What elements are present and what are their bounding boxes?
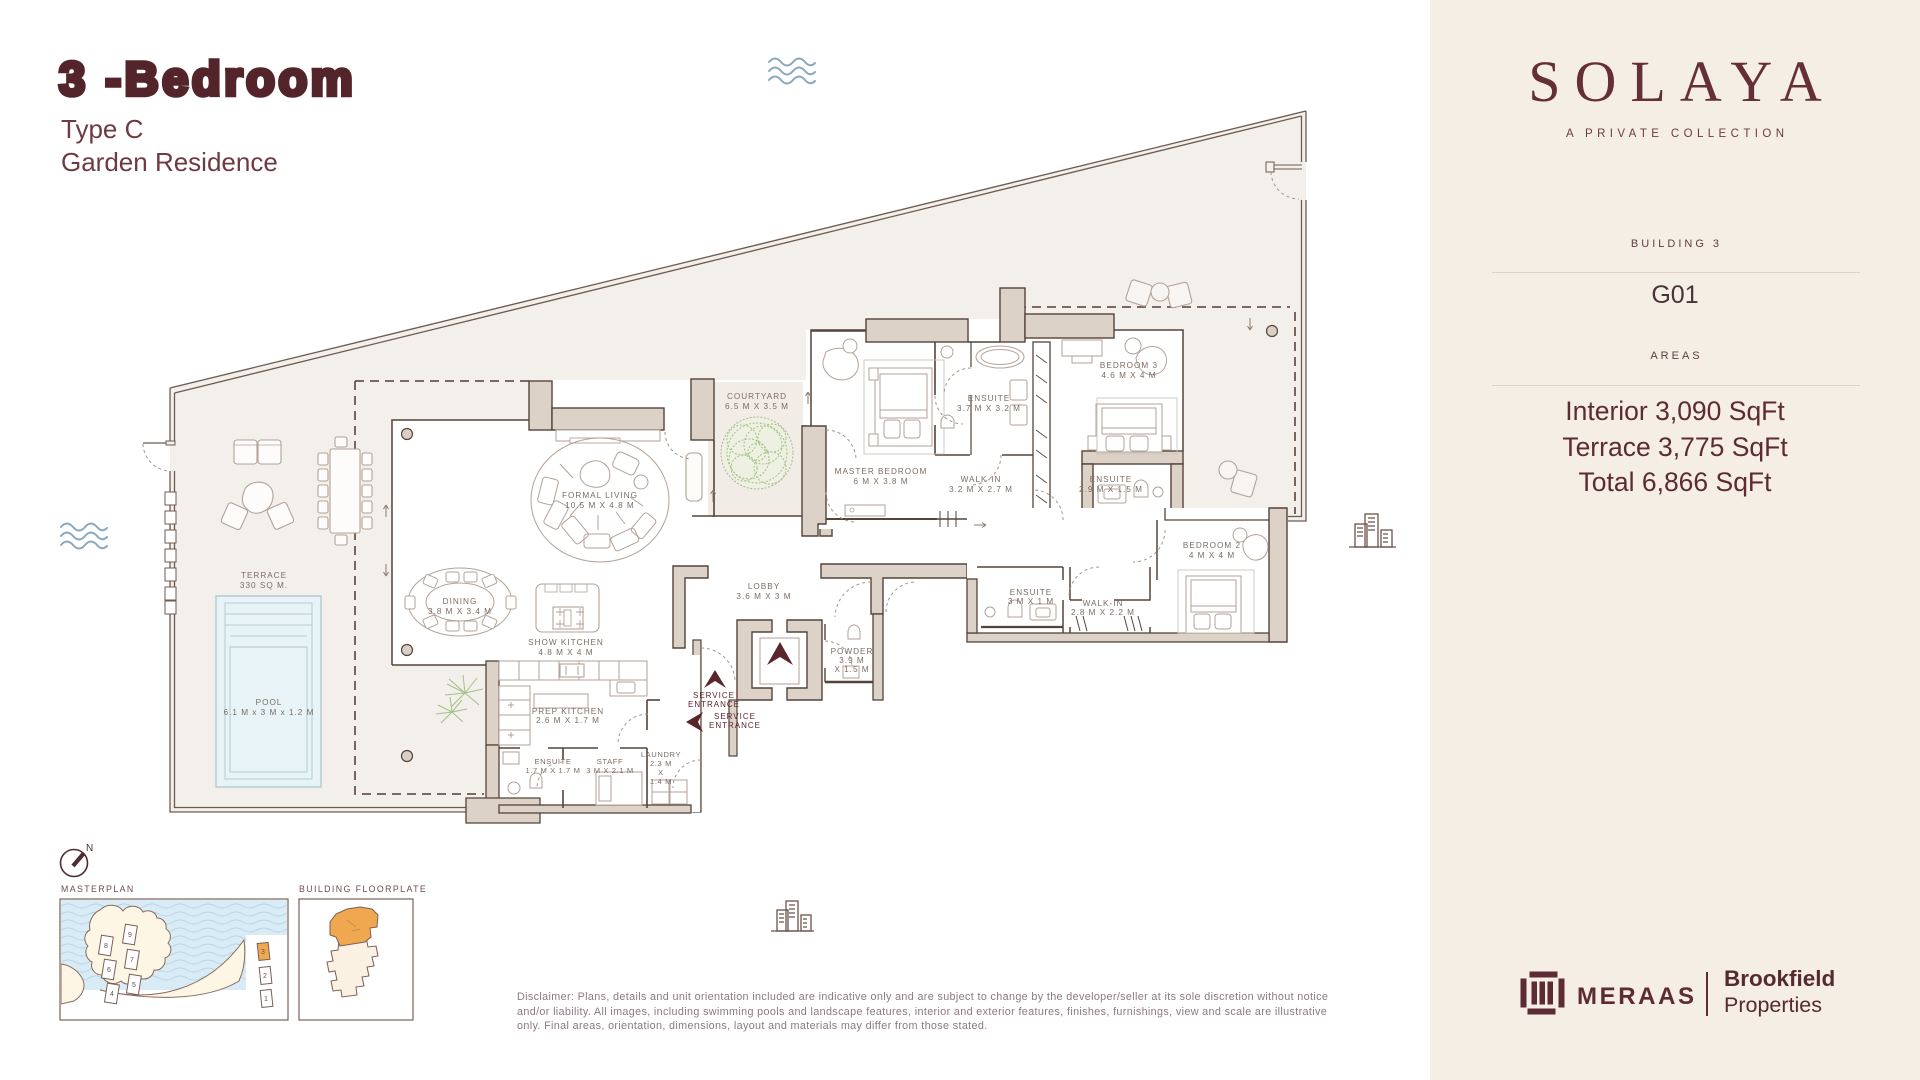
svg-text:1: 1 bbox=[264, 996, 268, 1003]
svg-text:ENSUITE: ENSUITE bbox=[968, 394, 1011, 403]
svg-text:WALK-IN: WALK-IN bbox=[961, 475, 1002, 484]
svg-text:6.1 M x 3 M x 1.2 M: 6.1 M x 3 M x 1.2 M bbox=[224, 708, 315, 717]
svg-text:SERVICE: SERVICE bbox=[693, 691, 735, 700]
svg-text:ENSUITE: ENSUITE bbox=[1090, 475, 1133, 484]
svg-text:5: 5 bbox=[132, 982, 136, 989]
svg-text:6.5 M X 3.5 M: 6.5 M X 3.5 M bbox=[725, 402, 789, 411]
svg-text:BEDROOM 2: BEDROOM 2 bbox=[1183, 541, 1241, 550]
svg-text:BEDROOM 3: BEDROOM 3 bbox=[1100, 361, 1158, 370]
svg-text:8: 8 bbox=[104, 943, 108, 950]
svg-text:2.6 M X 1.7 M: 2.6 M X 1.7 M bbox=[536, 716, 600, 725]
svg-text:WALK-IN: WALK-IN bbox=[1083, 599, 1124, 608]
svg-text:1.7 M X 1.7 M: 1.7 M X 1.7 M bbox=[525, 766, 580, 775]
svg-text:SERVICE: SERVICE bbox=[714, 712, 756, 721]
svg-text:3 M X 2.1 M: 3 M X 2.1 M bbox=[586, 766, 634, 775]
svg-text:9: 9 bbox=[128, 932, 132, 939]
svg-text:2.9 M X 1.5 M: 2.9 M X 1.5 M bbox=[1079, 485, 1143, 494]
svg-text:POOL: POOL bbox=[256, 698, 283, 707]
svg-text:ENSUITE: ENSUITE bbox=[534, 757, 571, 766]
svg-text:DINING: DINING bbox=[443, 597, 478, 606]
svg-text:ENTRANCE: ENTRANCE bbox=[709, 721, 761, 730]
svg-text:MASTERPLAN: MASTERPLAN bbox=[61, 884, 135, 894]
svg-text:ENTRANCE: ENTRANCE bbox=[688, 700, 740, 709]
svg-text:FORMAL LIVING: FORMAL LIVING bbox=[562, 491, 638, 500]
svg-text:X 1.5 M: X 1.5 M bbox=[834, 665, 869, 674]
svg-text:2: 2 bbox=[263, 973, 267, 980]
svg-text:POWDER: POWDER bbox=[831, 647, 874, 656]
svg-text:X: X bbox=[658, 768, 664, 777]
svg-text:PREP KITCHEN: PREP KITCHEN bbox=[532, 707, 604, 716]
svg-text:2.3 M: 2.3 M bbox=[650, 759, 672, 768]
svg-text:LOBBY: LOBBY bbox=[748, 582, 780, 591]
svg-text:N: N bbox=[86, 843, 93, 854]
svg-text:BUILDING FLOORPLATE: BUILDING FLOORPLATE bbox=[299, 884, 427, 894]
svg-text:10.5 M X 4.8 M: 10.5 M X 4.8 M bbox=[565, 501, 635, 510]
svg-text:ENSUITE: ENSUITE bbox=[1010, 588, 1053, 597]
svg-text:MASTER BEDROOM: MASTER BEDROOM bbox=[835, 467, 928, 476]
svg-text:4 M X 4 M: 4 M X 4 M bbox=[1189, 551, 1235, 560]
svg-text:3 M X 1 M: 3 M X 1 M bbox=[1008, 597, 1054, 606]
svg-text:COURTYARD: COURTYARD bbox=[727, 392, 787, 401]
svg-text:3: 3 bbox=[261, 949, 265, 956]
svg-text:330 SQ M.: 330 SQ M. bbox=[240, 581, 288, 590]
svg-text:3.2 M X 2.7 M: 3.2 M X 2.7 M bbox=[949, 485, 1013, 494]
svg-text:3.8 M X 3.4 M: 3.8 M X 3.4 M bbox=[428, 607, 492, 616]
svg-text:4: 4 bbox=[110, 991, 114, 998]
svg-text:SHOW KITCHEN: SHOW KITCHEN bbox=[528, 638, 604, 647]
svg-text:2.8 M X 2.2 M: 2.8 M X 2.2 M bbox=[1071, 608, 1135, 617]
svg-text:TERRACE: TERRACE bbox=[241, 571, 287, 580]
svg-text:7: 7 bbox=[130, 957, 134, 964]
svg-text:3.7 M X 3.2 M: 3.7 M X 3.2 M bbox=[957, 404, 1021, 413]
svg-text:1.4 M: 1.4 M bbox=[650, 777, 672, 786]
svg-text:6 M X 3.8 M: 6 M X 3.8 M bbox=[853, 477, 908, 486]
svg-text:LAUNDRY: LAUNDRY bbox=[641, 750, 681, 759]
svg-text:STAFF: STAFF bbox=[597, 757, 623, 766]
svg-text:3.6 M X 3 M: 3.6 M X 3 M bbox=[736, 592, 791, 601]
svg-text:4.6 M X 4 M: 4.6 M X 4 M bbox=[1101, 371, 1156, 380]
svg-text:6: 6 bbox=[107, 967, 111, 974]
